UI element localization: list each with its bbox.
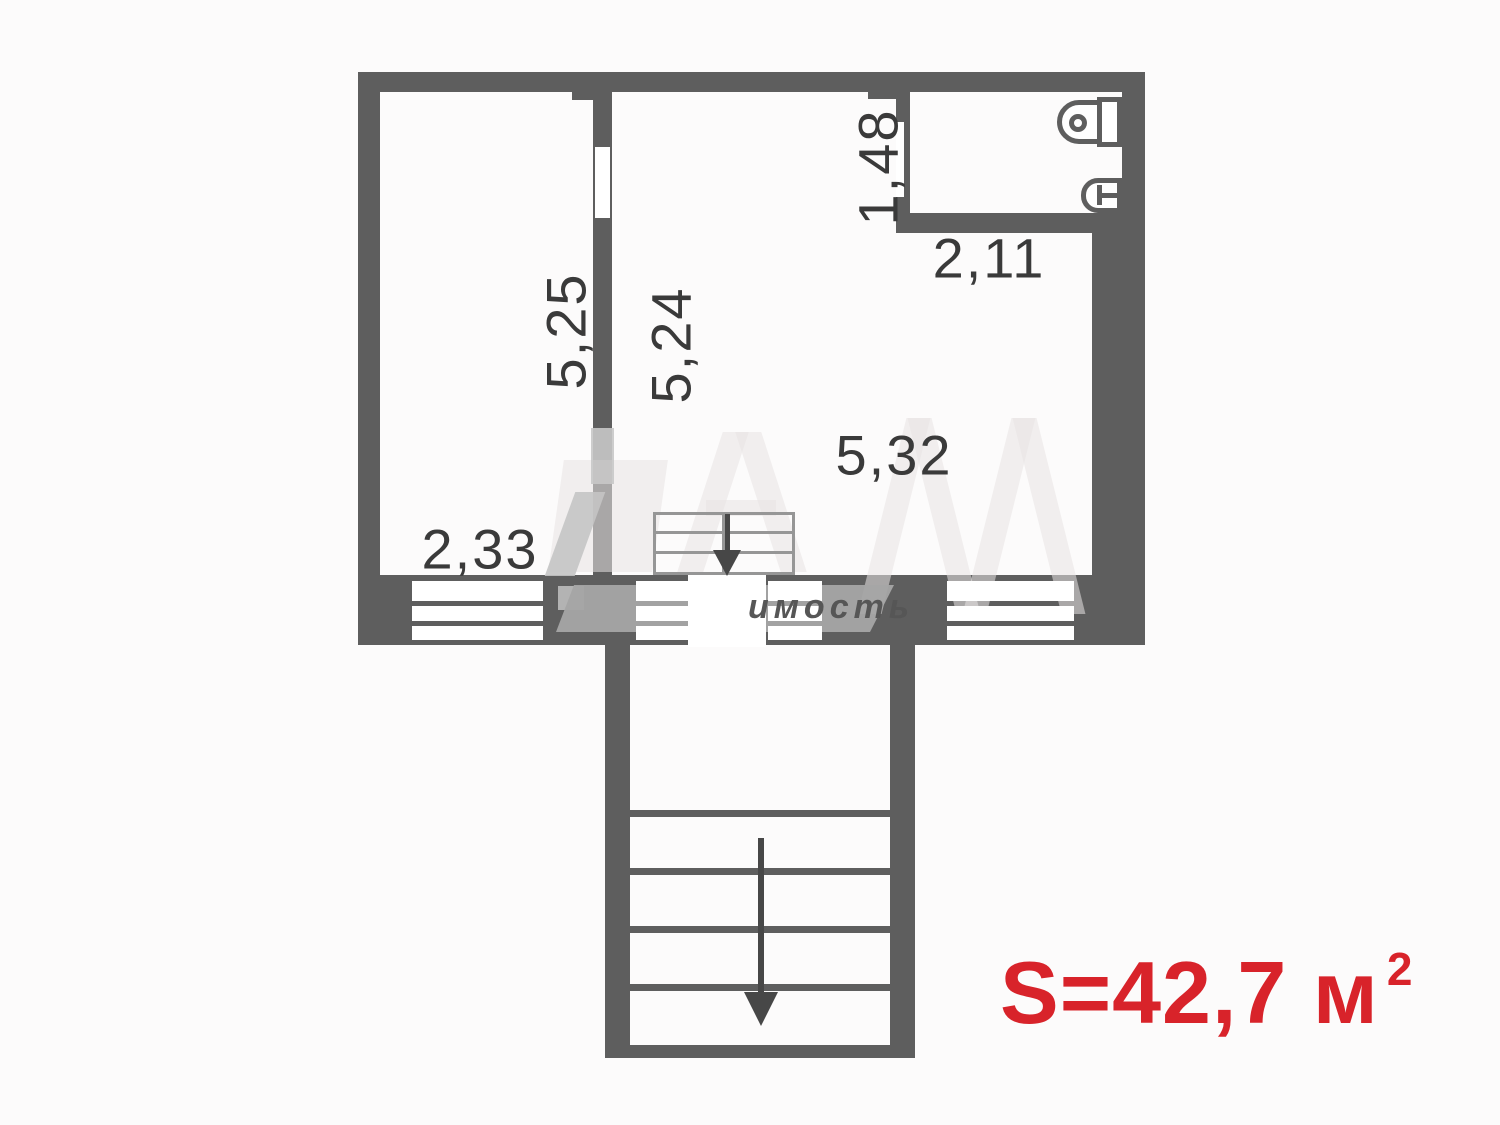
dimension-left-room-width: 2,33 — [422, 517, 539, 582]
window-slat — [636, 581, 688, 601]
stairwell-wall-left — [605, 645, 630, 1058]
sink-faucet-icon — [1099, 193, 1122, 198]
floor-plan: имость 2,33 5,25 5,24 5,32 2,11 1,48 S=4… — [0, 0, 1500, 1125]
toilet-drain-circle — [1069, 114, 1087, 132]
window-slat — [947, 626, 1074, 640]
dimension-left-room-depth: 5,25 — [534, 273, 599, 390]
interior-door-slot — [595, 147, 610, 218]
window-slat — [412, 581, 543, 601]
stairwell-wall-bottom — [605, 1045, 915, 1058]
stair-tread — [630, 810, 890, 817]
window-right — [947, 575, 1074, 645]
total-area-superscript: 2 — [1387, 943, 1414, 995]
window-slat — [947, 606, 1074, 621]
stair-down-arrow-icon — [744, 992, 778, 1026]
wall-top — [358, 72, 1145, 92]
total-area-label: S=42,7 м2 — [1000, 942, 1414, 1044]
entry-sidelight-left — [636, 575, 688, 645]
stairwell-wall-right — [890, 645, 915, 1058]
window-slat — [768, 626, 822, 640]
window-slat — [636, 626, 688, 640]
stair-arrow-shaft — [758, 838, 764, 994]
dimension-main-room-width: 5,32 — [836, 423, 953, 488]
window-slat — [636, 606, 688, 621]
entry-down-arrow-icon — [713, 550, 741, 576]
toilet-tank — [1097, 97, 1122, 147]
watermark-wall-highlight — [591, 428, 614, 484]
window-slat — [412, 606, 543, 621]
window-slat — [947, 581, 1074, 601]
wall-tooth-left — [572, 92, 593, 100]
entry-arrow-shaft — [725, 514, 730, 554]
wall-left — [358, 72, 380, 645]
total-area-value: S=42,7 м — [1000, 943, 1379, 1042]
dimension-main-room-depth: 5,24 — [639, 287, 704, 404]
watermark-text: имость — [748, 588, 914, 627]
sink-faucet-icon — [1097, 185, 1102, 205]
window-left — [412, 575, 543, 645]
dimension-bathroom-width: 2,11 — [933, 226, 1046, 291]
window-slat — [412, 626, 543, 640]
dimension-bathroom-entry: 1,48 — [846, 109, 911, 226]
wall-right-upper — [1122, 72, 1145, 218]
